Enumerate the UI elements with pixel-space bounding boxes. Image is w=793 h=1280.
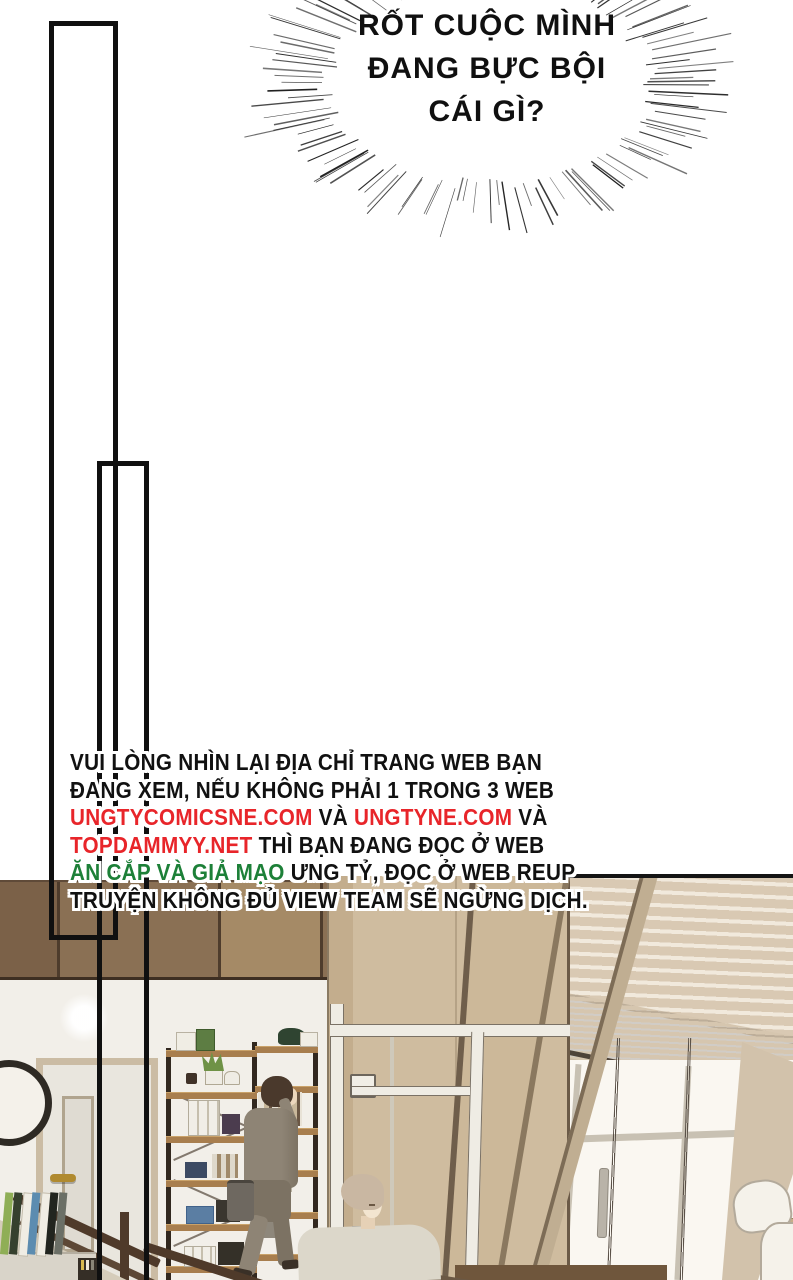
notice-line: VUI LÒNG NHÌN LẠI ĐỊA CHỈ TRANG WEB BẠN [70,749,588,777]
young-man-shoulders [297,1224,441,1280]
shelf-board [255,1046,318,1053]
young-man-eye [369,1204,375,1206]
pen [81,1260,84,1270]
notice-segment-black: THÌ BẠN ĐANG ĐỌC Ở WEB [253,832,545,858]
notice-line: TRUYỆN KHÔNG ĐỦ VIEW TEAM SẼ NGỪNG DỊCH. [70,887,588,915]
shoe [282,1259,300,1269]
notice-segment-black: VÀ [313,804,354,830]
plant-pot [205,1070,223,1085]
pen [86,1260,89,1270]
briefcase [227,1180,254,1221]
notice-segment-black: ƯNG TỶ, ĐỌC Ở WEB REUP [285,859,576,885]
comic-page: RỐT CUỘC MÌNH ĐANG BỰC BỘI CÁI GÌ? [0,0,793,1280]
speech-line: ĐANG BỰC BỘI [358,47,616,90]
shelf-post [166,1048,171,1280]
anti-piracy-notice: VUI LÒNG NHÌN LẠI ĐỊA CHỈ TRANG WEB BẠNĐ… [70,749,588,915]
shelf-board [166,1092,257,1099]
notice-segment-green: ĂN CẮP VÀ GIẢ MẠO [70,859,285,885]
notice-segment-red: UNGTYCOMICSNE.COM [70,804,313,830]
pen [91,1260,94,1270]
speech-line: CÁI GÌ? [358,90,616,133]
shelf-board [166,1224,257,1231]
partition-rail [330,1024,570,1037]
navy-books [185,1162,207,1178]
notice-segment-red: UNGTYNE.COM [354,804,512,830]
notice-segment-black: TRUYỆN KHÔNG ĐỦ VIEW TEAM SẼ NGỪNG DỊCH. [70,887,588,913]
notice-line: TOPDAMMYY.NET THÌ BẠN ĐANG ĐỌC Ở WEB [70,832,588,860]
notice-segment-black: VUI LÒNG NHÌN LẠI ĐỊA CHỈ TRANG WEB BẠN [70,749,542,775]
notice-line: ĂN CẮP VÀ GIẢ MẠO ƯNG TỶ, ĐỌC Ở WEB REUP [70,859,588,887]
notice-line: ĐANG XEM, NẾU KHÔNG PHẢI 1 TRONG 3 WEB [70,777,588,805]
speech-text: RỐT CUỘC MÌNH ĐANG BỰC BỘI CÁI GÌ? [358,4,616,133]
vase [224,1071,240,1085]
notice-segment-black: ĐANG XEM, NẾU KHÔNG PHẢI 1 TRONG 3 WEB [70,777,554,803]
white-box [300,1032,318,1047]
door-handle [50,1174,76,1182]
armchair-seat [760,1222,793,1280]
notice-segment-red: TOPDAMMYY.NET [70,832,253,858]
glass-door-top-rail [352,1086,470,1096]
suit-man-torso [244,1108,298,1188]
book-row [212,1154,238,1178]
dark-box [222,1114,240,1134]
binders [188,1100,220,1136]
notice-segment-black: VÀ [512,804,547,830]
baseboard [455,1265,667,1280]
notice-line: UNGTYCOMICSNE.COM VÀ UNGTYNE.COM VÀ [70,804,588,832]
speech-line: RỐT CUỘC MÌNH [358,4,616,47]
green-book [196,1029,215,1051]
mug [186,1073,197,1084]
blue-box [186,1206,214,1224]
white-box [176,1032,196,1051]
young-man-hair [341,1174,384,1210]
